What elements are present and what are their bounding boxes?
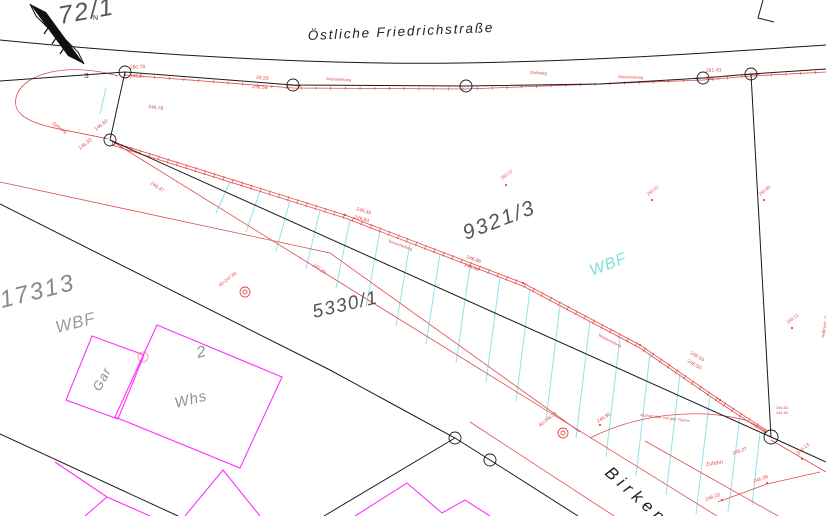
survey-annotation: 246.76: [148, 104, 164, 112]
survey-annotation: 250.85: [758, 184, 772, 197]
survey-annotation: 298.58: [252, 84, 268, 91]
survey-annotation: 29.29: [256, 75, 269, 82]
parcel-label-72-1: 72/1: [56, 0, 117, 30]
survey-annotation: 250.22: [500, 168, 514, 181]
building-label-house: Whs: [173, 387, 209, 411]
compass-south-label: S: [84, 73, 89, 80]
survey-annotation: 246.27: [130, 73, 146, 80]
survey-annotation: 249.12: [786, 312, 800, 325]
survey-annotation: 40=247.83: [218, 270, 238, 287]
bottom-left-boundary: [0, 434, 178, 516]
street-name-bottom: Birkenf: [601, 463, 679, 516]
survey-annotation: Asphalt über. voll geb. Fläche: [640, 413, 690, 423]
survey-annotation: 247.20: [311, 263, 327, 276]
buildings-layer: [55, 325, 490, 516]
survey-annotation: Wasserleitung: [388, 238, 413, 251]
benchmark-symbols: [240, 287, 568, 438]
usage-label-wbf-gray: WBF: [53, 308, 98, 336]
parcel-label-17313: 17313: [0, 269, 78, 314]
survey-annotation: 261.43: [706, 67, 722, 74]
map-canvas: N S Östliche Friedrichstraße Birkenf 72/…: [0, 0, 826, 516]
survey-annotation: Zufahrt: [705, 460, 724, 468]
street-north-edge: [0, 40, 826, 63]
red-line-birken-a: [470, 422, 614, 516]
corner-mark-top-right: [758, 0, 774, 22]
survey-annotation: 250.12: [646, 184, 660, 197]
cadastral-map-view: N S Östliche Friedrichstraße Birkenf 72/…: [0, 0, 826, 516]
boundary-p1-p2: [110, 72, 125, 140]
survey-annotation: 261.17: [706, 75, 722, 82]
survey-annotation: 40=248.39: [538, 410, 558, 427]
building-label-number: 2: [194, 343, 208, 362]
survey-points: [104, 66, 778, 466]
building-bottom-left: [55, 462, 150, 516]
red-line-zufahrt-v: [718, 472, 820, 502]
survey-annotation: 260.76: [130, 64, 146, 71]
survey-annotation: 246.47: [149, 181, 165, 194]
building-bottom-right: [355, 483, 490, 516]
survey-annotation: Wasserleitung: [326, 76, 351, 82]
survey-annotation: Gehweg: [530, 70, 547, 76]
survey-annotation: Wasserleitung: [618, 74, 643, 80]
survey-annotation: 246.62: [776, 410, 789, 415]
usage-label-wbf-cyan: WBF: [587, 250, 629, 280]
red-line-lower: [110, 140, 717, 516]
parcel-label-5330-1: 5330/1: [310, 287, 380, 323]
survey-annotation: 146.03: [78, 137, 94, 151]
building-bottom-center: [185, 470, 260, 516]
survey-annotation: 246.22: [705, 492, 722, 503]
diagonal-boundary: [110, 140, 826, 462]
right-boundary: [751, 74, 771, 437]
parcel-label-9321-3: 9321/3: [460, 196, 539, 245]
parcel-boundaries: [0, 0, 826, 516]
building-label-garage: Gar: [89, 365, 114, 394]
survey-annotation: 246.27: [732, 446, 749, 457]
branch-boundary: [324, 438, 455, 516]
red-annotations-layer: 260.76246.2729.29298.58WasserleitungGehw…: [51, 64, 826, 503]
double-red-line-b: [112, 145, 766, 433]
survey-annotation: 146.60: [94, 118, 110, 132]
street-name-top: Östliche Friedrichstraße: [307, 20, 494, 43]
red-survey-lines: [0, 70, 826, 516]
survey-annotation: wahrsch. Grenze: [820, 303, 826, 338]
survey-annotation: Wasserleitung: [598, 332, 623, 348]
